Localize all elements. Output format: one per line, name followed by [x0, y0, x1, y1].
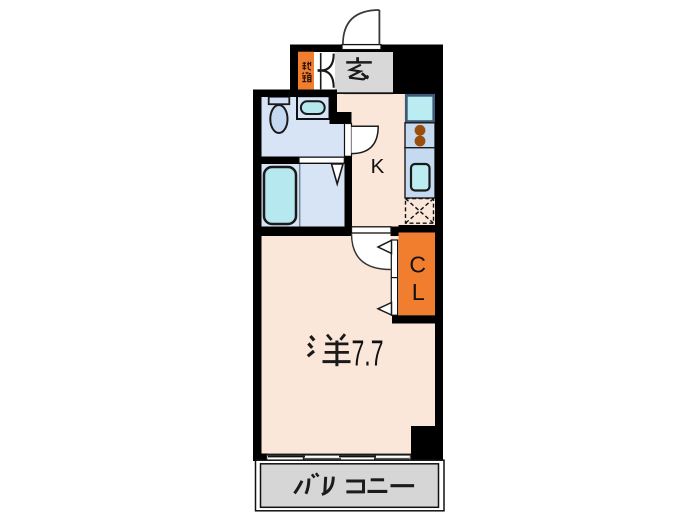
- svg-text:C: C: [409, 252, 426, 278]
- svg-text:7.7: 7.7: [352, 332, 384, 373]
- svg-text:L: L: [412, 279, 425, 305]
- svg-text:K: K: [371, 155, 385, 178]
